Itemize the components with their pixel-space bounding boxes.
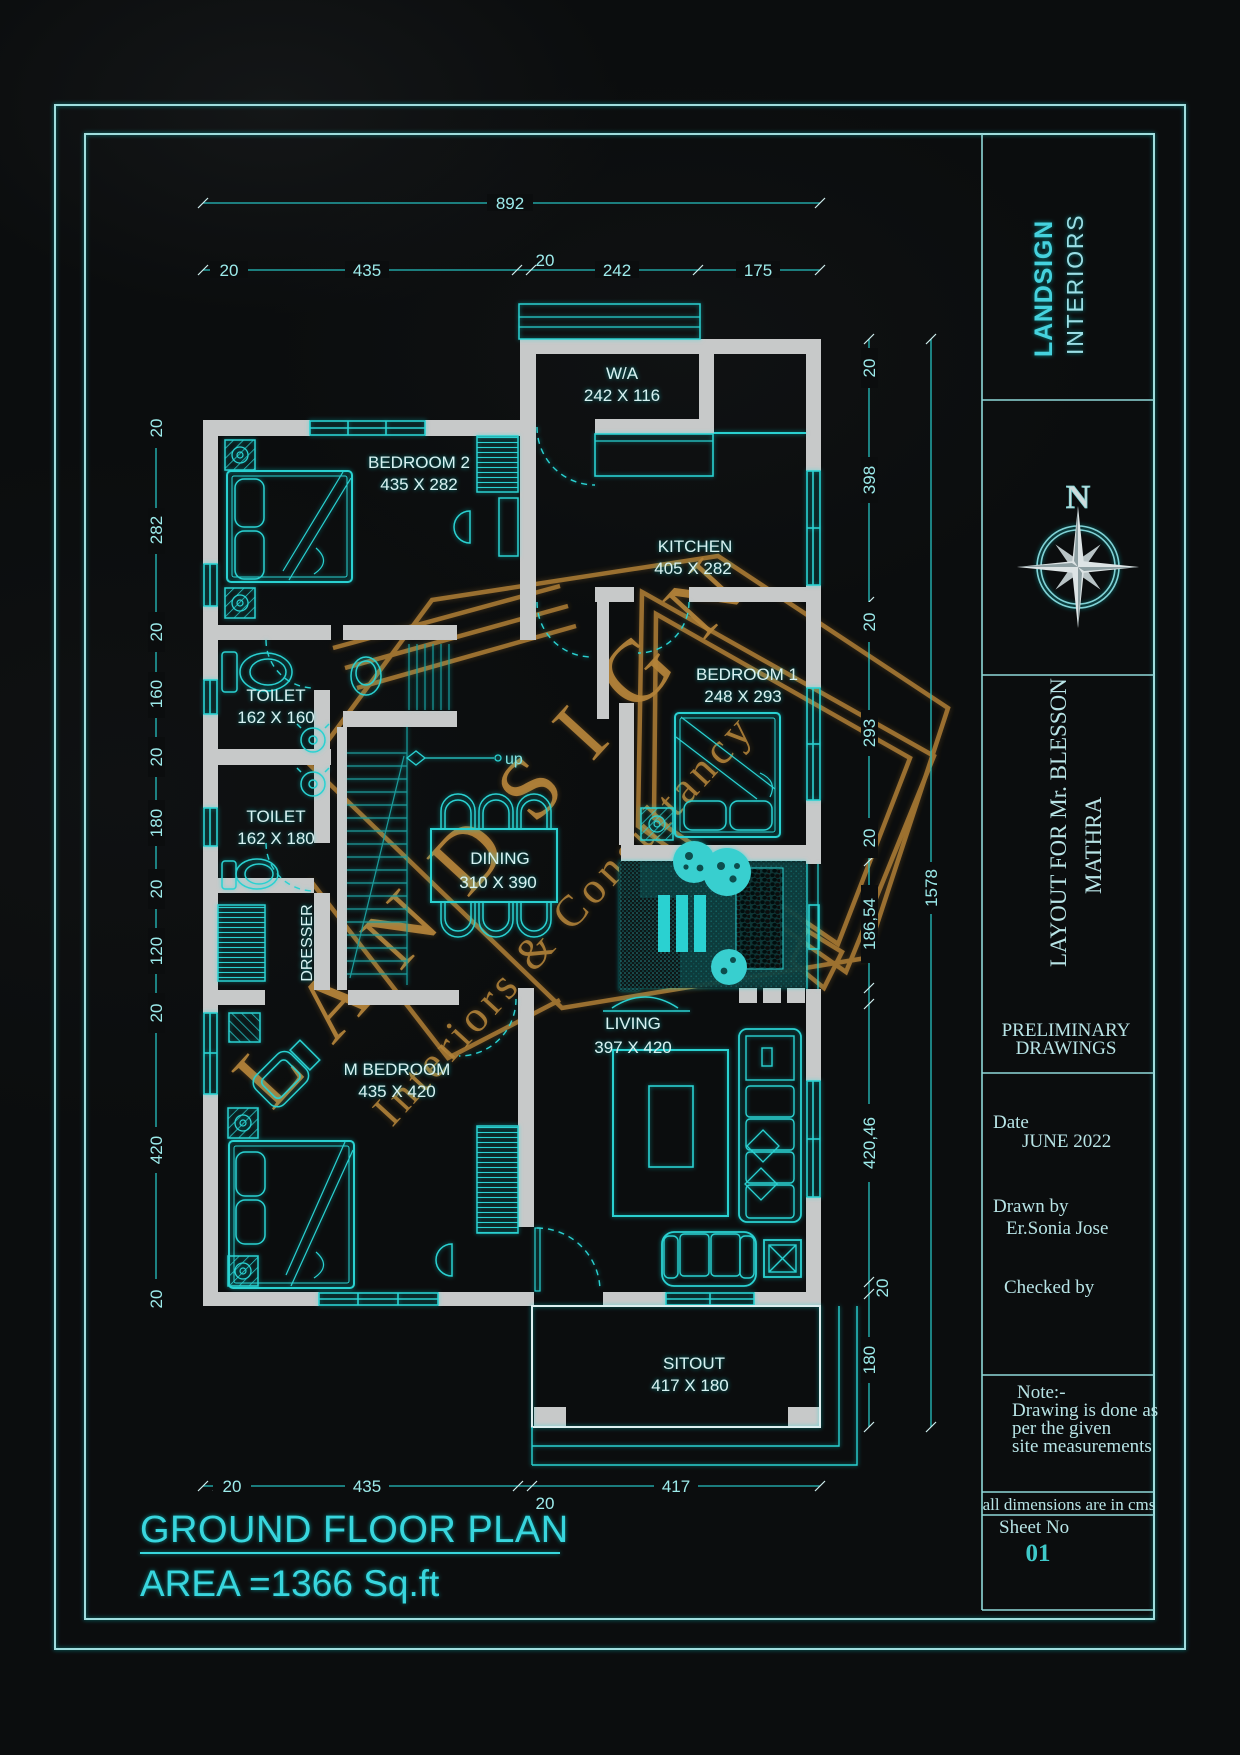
svg-text:20: 20 xyxy=(147,623,166,642)
svg-text:892: 892 xyxy=(496,194,524,213)
svg-text:420: 420 xyxy=(147,1136,166,1164)
svg-text:Drawn by: Drawn by xyxy=(993,1196,1069,1217)
svg-text:GROUND FLOOR PLAN: GROUND FLOOR PLAN xyxy=(140,1509,569,1551)
svg-text:20: 20 xyxy=(860,359,879,378)
svg-text:all dimensions are in cms: all dimensions are in cms xyxy=(983,1495,1156,1514)
svg-text:JUNE 2022: JUNE 2022 xyxy=(1022,1131,1111,1152)
svg-text:SITOUT: SITOUT xyxy=(663,1354,725,1373)
svg-text:242 X 116: 242 X 116 xyxy=(584,386,660,405)
svg-text:AREA =1366 Sq.ft: AREA =1366 Sq.ft xyxy=(140,1563,440,1604)
svg-text:20: 20 xyxy=(147,748,166,767)
svg-text:20: 20 xyxy=(220,261,239,280)
svg-text:BEDROOM 2: BEDROOM 2 xyxy=(368,453,470,472)
svg-text:M BEDROOM: M BEDROOM xyxy=(344,1060,451,1079)
svg-text:20: 20 xyxy=(147,419,166,438)
svg-text:01: 01 xyxy=(1026,1540,1051,1567)
svg-text:TOILET: TOILET xyxy=(246,686,305,705)
svg-text:DRAWINGS: DRAWINGS xyxy=(1016,1038,1117,1059)
svg-text:W/A: W/A xyxy=(606,364,639,383)
svg-text:186,54: 186,54 xyxy=(860,898,879,950)
svg-text:Sheet No: Sheet No xyxy=(999,1517,1069,1538)
svg-text:DINING: DINING xyxy=(470,849,530,868)
svg-text:435: 435 xyxy=(353,1477,381,1496)
svg-text:162 X 160: 162 X 160 xyxy=(237,708,315,727)
svg-text:397 X 420: 397 X 420 xyxy=(594,1038,672,1057)
svg-text:293: 293 xyxy=(860,719,879,747)
svg-text:INTERIORS: INTERIORS xyxy=(1062,214,1088,355)
svg-text:TOILET: TOILET xyxy=(246,807,305,826)
svg-text:180: 180 xyxy=(860,1346,879,1374)
svg-text:Date: Date xyxy=(993,1112,1029,1133)
svg-text:310 X 390: 310 X 390 xyxy=(459,873,537,892)
svg-text:248 X 293: 248 X 293 xyxy=(704,687,782,706)
svg-text:435 X 282: 435 X 282 xyxy=(380,475,458,494)
svg-text:20: 20 xyxy=(147,880,166,899)
svg-text:420,46: 420,46 xyxy=(860,1117,879,1169)
svg-text:20: 20 xyxy=(536,251,555,270)
svg-text:20: 20 xyxy=(860,829,879,848)
svg-text:242: 242 xyxy=(603,261,631,280)
svg-text:20: 20 xyxy=(223,1477,242,1496)
svg-text:LANDSIGN: LANDSIGN xyxy=(1030,220,1058,357)
svg-text:120: 120 xyxy=(147,937,166,965)
svg-text:162 X 180: 162 X 180 xyxy=(237,829,315,848)
svg-text:417 X 180: 417 X 180 xyxy=(651,1376,729,1395)
svg-text:LAYOUT FOR Mr. BLESSON: LAYOUT FOR Mr. BLESSON xyxy=(1046,678,1071,967)
svg-text:398: 398 xyxy=(860,466,879,494)
svg-text:1578: 1578 xyxy=(922,869,941,907)
svg-text:BEDROOM 1: BEDROOM 1 xyxy=(696,665,798,684)
svg-text:Er.Sonia Jose: Er.Sonia Jose xyxy=(1006,1218,1108,1239)
svg-text:20: 20 xyxy=(860,613,879,632)
svg-text:20: 20 xyxy=(147,1290,166,1309)
svg-text:180: 180 xyxy=(147,809,166,837)
svg-text:20: 20 xyxy=(873,1279,892,1298)
svg-text:Checked by: Checked by xyxy=(1004,1277,1095,1298)
svg-text:up: up xyxy=(505,751,523,768)
svg-text:MATHRA: MATHRA xyxy=(1081,796,1106,894)
svg-text:20: 20 xyxy=(147,1004,166,1023)
svg-text:435 X 420: 435 X 420 xyxy=(358,1082,436,1101)
svg-text:417: 417 xyxy=(662,1477,690,1496)
svg-text:435: 435 xyxy=(353,261,381,280)
svg-text:282: 282 xyxy=(147,516,166,544)
svg-text:LIVING: LIVING xyxy=(605,1014,661,1033)
svg-text:160: 160 xyxy=(147,680,166,708)
svg-text:405 X 282: 405 X 282 xyxy=(654,559,732,578)
svg-text:175: 175 xyxy=(744,261,772,280)
svg-text:KITCHEN: KITCHEN xyxy=(658,537,733,556)
svg-text:site measurements: site measurements xyxy=(1012,1436,1152,1457)
svg-text:DRESSER: DRESSER xyxy=(299,904,316,981)
